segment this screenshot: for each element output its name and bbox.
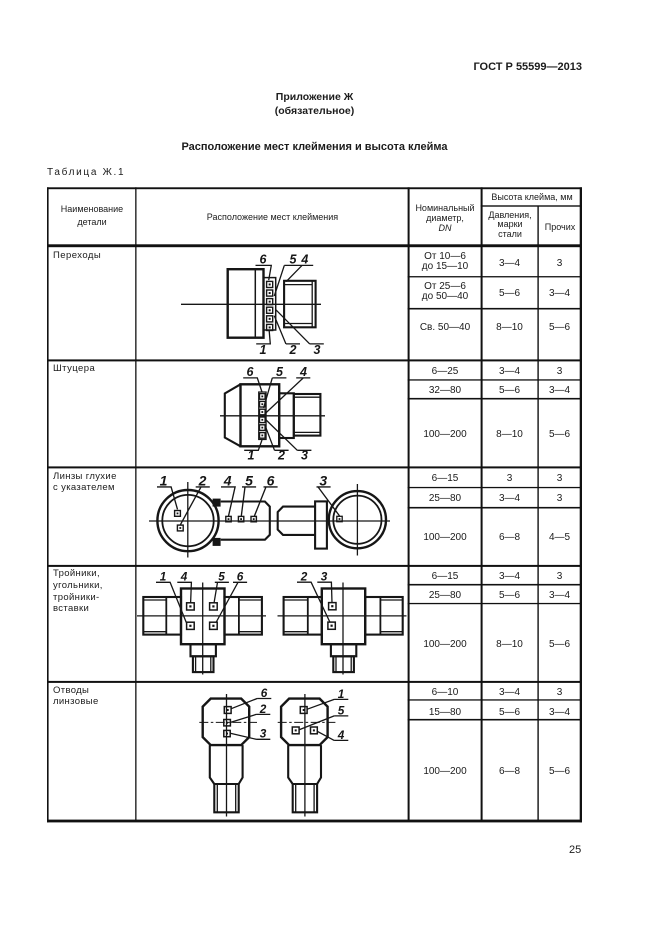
- svg-text:4: 4: [337, 728, 345, 742]
- svg-text:4: 4: [180, 570, 188, 584]
- svg-text:6: 6: [247, 365, 255, 379]
- svg-text:2: 2: [289, 343, 297, 357]
- svg-text:1: 1: [160, 570, 167, 584]
- svg-text:3: 3: [301, 448, 308, 462]
- svg-text:2: 2: [277, 448, 285, 462]
- svg-text:2: 2: [300, 570, 308, 584]
- svg-text:5: 5: [338, 703, 345, 717]
- svg-text:3: 3: [314, 343, 321, 357]
- svg-text:1: 1: [248, 448, 255, 462]
- svg-text:1: 1: [260, 343, 267, 357]
- svg-text:3: 3: [260, 727, 267, 741]
- svg-text:6: 6: [260, 253, 268, 267]
- svg-text:2: 2: [198, 472, 207, 488]
- svg-text:6: 6: [261, 686, 268, 700]
- svg-text:6: 6: [237, 570, 244, 584]
- svg-text:3: 3: [321, 570, 328, 584]
- svg-text:5: 5: [218, 570, 225, 584]
- svg-text:4: 4: [299, 365, 307, 379]
- svg-text:4: 4: [300, 253, 308, 267]
- svg-text:2: 2: [259, 702, 267, 716]
- svg-text:5: 5: [245, 472, 253, 488]
- svg-text:5: 5: [290, 253, 298, 267]
- svg-text:1: 1: [160, 472, 168, 488]
- svg-text:4: 4: [223, 472, 232, 488]
- svg-text:1: 1: [338, 687, 345, 701]
- svg-text:5: 5: [276, 365, 284, 379]
- svg-text:6: 6: [267, 472, 275, 488]
- svg-text:3: 3: [319, 472, 327, 488]
